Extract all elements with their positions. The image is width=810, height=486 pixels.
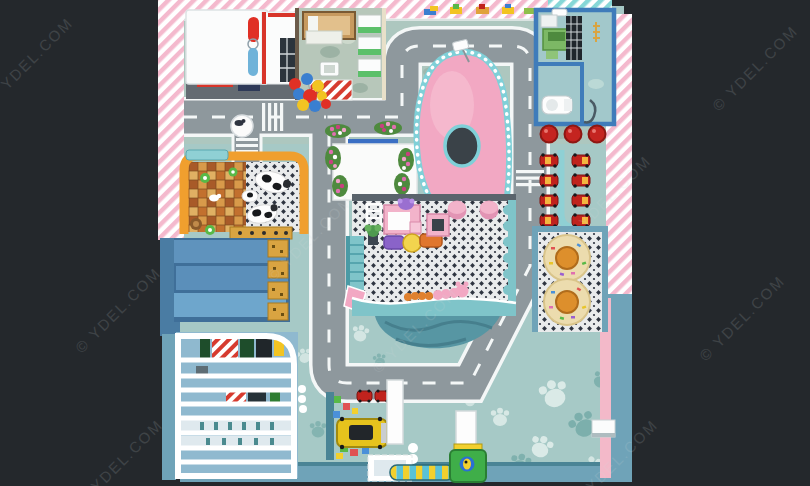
purple-ottoman	[384, 236, 404, 249]
blue-utility-room	[536, 9, 614, 124]
white-cabinet	[306, 31, 342, 44]
playhouse-roof	[174, 238, 290, 322]
gold-ladder	[593, 22, 600, 42]
mini-fridge	[541, 15, 557, 27]
white-slide-structure	[186, 10, 296, 99]
toddler-play-frame	[184, 150, 304, 239]
teal-bench	[186, 150, 228, 160]
back-wall-strip	[352, 194, 516, 201]
duck-table	[231, 115, 253, 137]
climbing-grid	[566, 16, 582, 60]
playground-floorplan-scene: © YDEL.COM© YDEL.COM© YDEL.COM© YDEL.COM…	[0, 0, 810, 486]
bedroom-right-wall	[382, 8, 386, 100]
round-party-table	[544, 279, 590, 325]
pink-frame-mirror	[427, 214, 449, 236]
zone-wall	[326, 392, 334, 460]
green-shelf-column	[358, 15, 381, 77]
teal-steps	[346, 236, 364, 290]
blue-slide-lane	[248, 48, 258, 76]
caterpillar-tunnel	[390, 465, 454, 480]
slide-hole	[445, 126, 479, 166]
school-bus-toy	[337, 417, 387, 449]
party-tables-zone	[532, 226, 608, 332]
round-party-table	[544, 235, 590, 281]
wall-bench-box	[592, 420, 615, 437]
red-slide-lane	[248, 17, 259, 42]
floorplan-render	[0, 0, 810, 486]
red-mushroom-stools	[541, 126, 606, 143]
white-toilet	[542, 96, 572, 114]
white-column	[387, 380, 403, 444]
yellow-stool	[403, 234, 421, 252]
